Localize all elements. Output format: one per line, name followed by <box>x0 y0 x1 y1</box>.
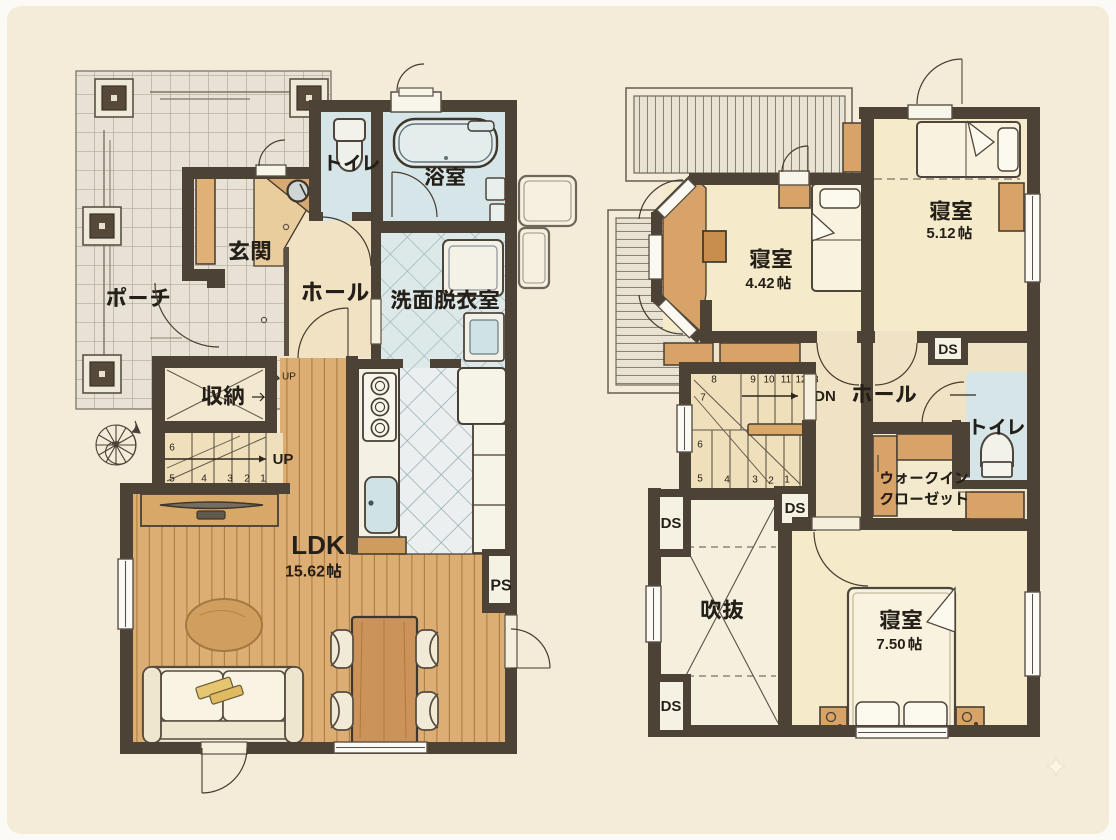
svg-text:UP: UP <box>273 451 294 468</box>
svg-text:7.50: 7.50 <box>876 636 905 653</box>
svg-text:15.62: 15.62 <box>285 564 325 581</box>
svg-text:DS: DS <box>661 698 682 715</box>
svg-text:6: 6 <box>697 440 703 451</box>
svg-text:LDK: LDK <box>291 530 345 560</box>
svg-text:5: 5 <box>697 474 703 485</box>
svg-text:DS: DS <box>661 515 682 532</box>
svg-text:1: 1 <box>260 474 266 485</box>
svg-text:4.42: 4.42 <box>745 275 774 292</box>
svg-text:PS: PS <box>490 578 512 595</box>
svg-text:9: 9 <box>750 375 756 386</box>
svg-text:11: 11 <box>781 375 792 386</box>
svg-text:4: 4 <box>724 475 730 486</box>
svg-text:7: 7 <box>700 393 706 404</box>
svg-text:8: 8 <box>711 375 717 386</box>
svg-text:2: 2 <box>768 476 774 487</box>
svg-text:4: 4 <box>201 474 207 485</box>
svg-text:DN: DN <box>814 388 836 405</box>
svg-text:5.12: 5.12 <box>926 225 955 242</box>
svg-text:2: 2 <box>244 474 250 485</box>
svg-text:3: 3 <box>752 475 758 486</box>
svg-text:10: 10 <box>763 375 775 386</box>
svg-text:UP: UP <box>282 372 296 383</box>
svg-text:3: 3 <box>227 474 233 485</box>
svg-text:DS: DS <box>938 341 957 357</box>
svg-text:5: 5 <box>169 474 175 485</box>
svg-text:DS: DS <box>785 500 806 517</box>
svg-text:6: 6 <box>169 443 175 454</box>
svg-text:1: 1 <box>784 475 790 486</box>
